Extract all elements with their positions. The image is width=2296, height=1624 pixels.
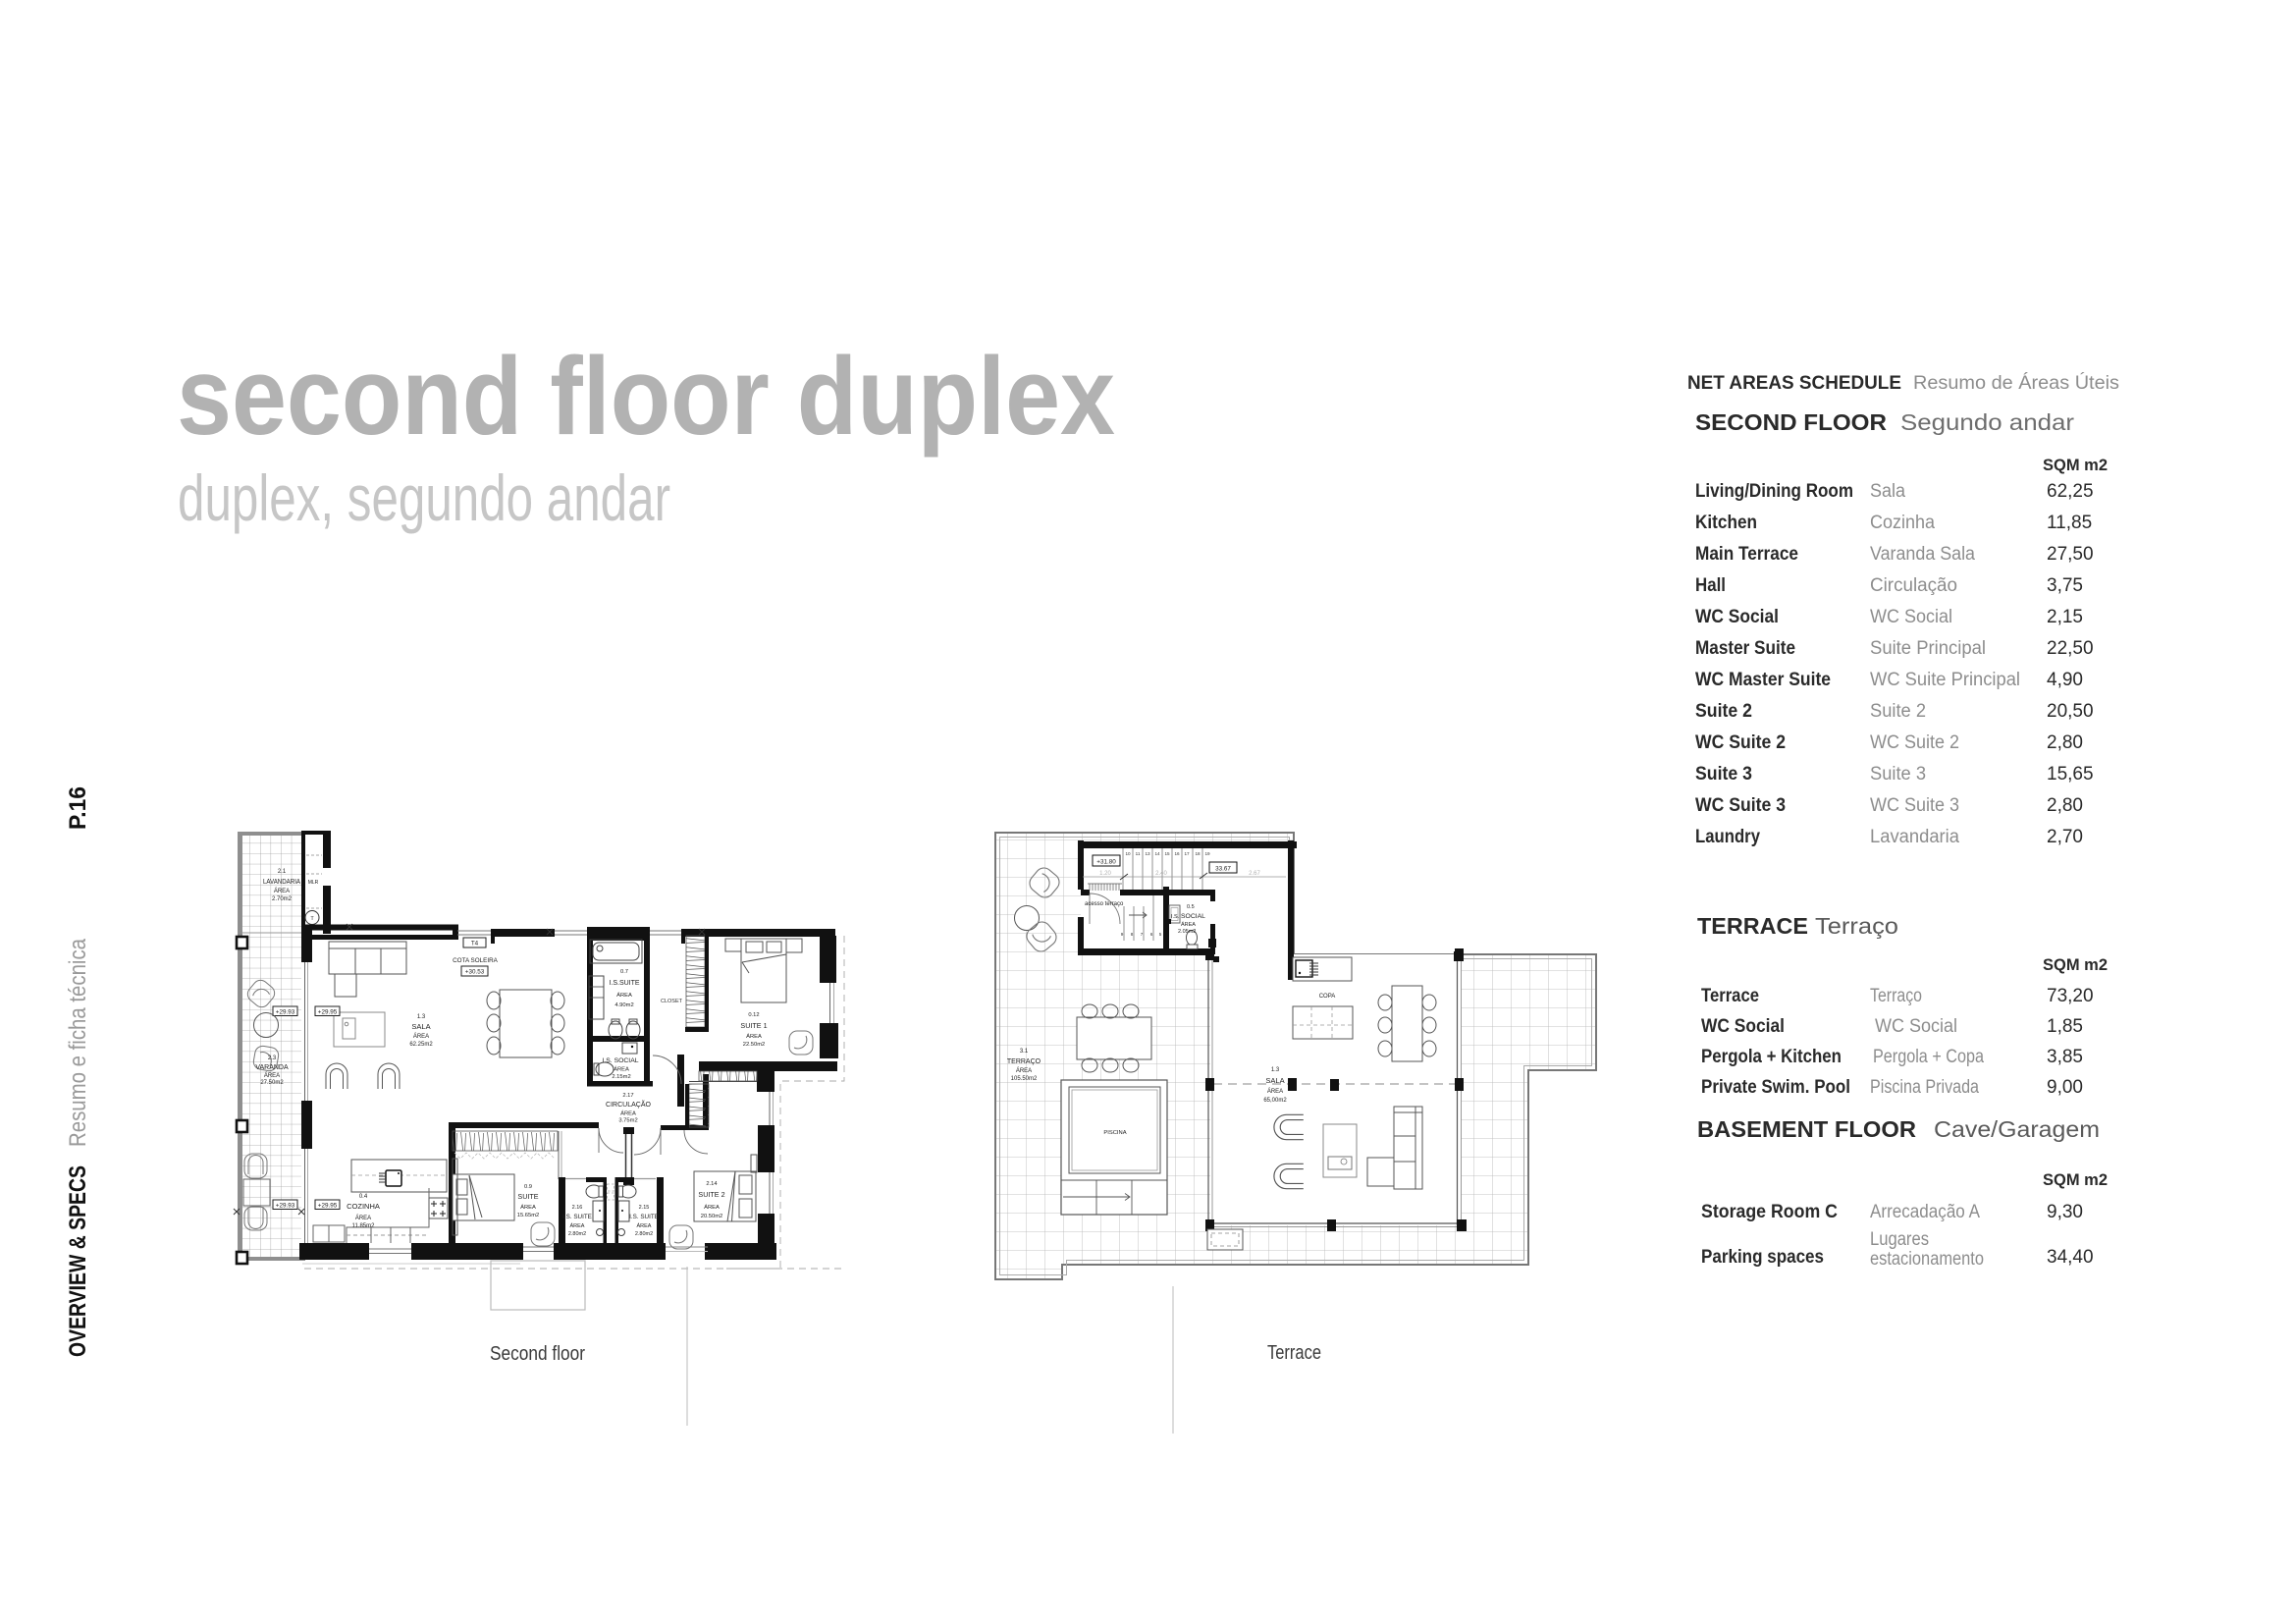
svg-text:27.50m2: 27.50m2 [260, 1080, 284, 1086]
svg-text:2.70m2: 2.70m2 [272, 896, 293, 902]
svg-text:BASEMENT FLOOR: BASEMENT FLOOR [1697, 1116, 1916, 1142]
svg-text:1.3: 1.3 [417, 1014, 426, 1020]
svg-text:Main Terrace: Main Terrace [1695, 544, 1798, 565]
svg-text:Resumo e ficha técnica: Resumo e ficha técnica [65, 938, 91, 1147]
svg-text:Resumo de Áreas Úteis: Resumo de Áreas Úteis [1913, 371, 2119, 394]
svg-text:ÁREA: ÁREA [570, 1222, 585, 1229]
svg-text:SALA: SALA [1265, 1076, 1284, 1085]
svg-text:SQM m2: SQM m2 [2043, 955, 2108, 974]
svg-text:COZINHA: COZINHA [347, 1202, 380, 1211]
svg-text:PISCINA: PISCINA [1103, 1130, 1126, 1136]
svg-text:+29.95: +29.95 [318, 1203, 338, 1210]
svg-text:ÁREA: ÁREA [1016, 1067, 1032, 1074]
svg-text:COPA: COPA [1319, 994, 1336, 1000]
svg-text:VARANDA: VARANDA [255, 1064, 289, 1071]
svg-text:18: 18 [1195, 851, 1201, 856]
svg-text:4,90: 4,90 [2047, 670, 2083, 690]
svg-text:Terrace: Terrace [1701, 986, 1759, 1006]
svg-text:estacionamento: estacionamento [1870, 1249, 1984, 1270]
svg-text:WC Suite Principal: WC Suite Principal [1870, 670, 2020, 690]
svg-text:Pergola + Kitchen: Pergola + Kitchen [1701, 1047, 1842, 1067]
svg-text:T4: T4 [471, 941, 479, 947]
svg-text:7: 7 [1141, 932, 1144, 937]
svg-text:20,50: 20,50 [2047, 701, 2094, 722]
svg-text:TERRAÇO: TERRAÇO [1007, 1058, 1041, 1065]
svg-text:Hall: Hall [1695, 575, 1726, 596]
svg-text:Lugares: Lugares [1870, 1229, 1929, 1250]
svg-text:1.20: 1.20 [1099, 871, 1111, 877]
svg-text:11,85: 11,85 [2047, 513, 2092, 533]
svg-text:9,00: 9,00 [2047, 1077, 2083, 1098]
svg-text:Master Suite: Master Suite [1695, 638, 1795, 659]
svg-text:Segundo andar: Segundo andar [1900, 409, 2074, 435]
svg-text:2.16: 2.16 [572, 1205, 583, 1211]
svg-text:ÁREA: ÁREA [746, 1033, 762, 1040]
svg-text:Suite 3: Suite 3 [1695, 764, 1752, 785]
svg-text:I.S. SOCIAL: I.S. SOCIAL [602, 1057, 638, 1064]
svg-text:ÁREA: ÁREA [637, 1222, 652, 1229]
svg-text:I.S. SUITE: I.S. SUITE [562, 1214, 592, 1220]
svg-text:0.5: 0.5 [1187, 904, 1195, 910]
svg-text:4.90m2: 4.90m2 [614, 1002, 633, 1008]
svg-text:WC Suite 2: WC Suite 2 [1695, 732, 1786, 753]
svg-text:ÁREA: ÁREA [704, 1204, 720, 1211]
svg-text:1.3: 1.3 [1271, 1067, 1280, 1073]
svg-text:WC Social: WC Social [1701, 1016, 1785, 1037]
svg-text:Suite Principal: Suite Principal [1870, 638, 1986, 659]
svg-text:15.65m2: 15.65m2 [517, 1213, 540, 1218]
svg-text:+29.95: +29.95 [318, 1009, 338, 1016]
svg-text:Terrace: Terrace [1267, 1341, 1321, 1364]
svg-text:ÁREA: ÁREA [520, 1204, 536, 1211]
svg-text:WC Suite 3: WC Suite 3 [1870, 795, 1959, 816]
svg-text:Arrecadação A: Arrecadação A [1870, 1202, 1980, 1222]
svg-text:11.85m2: 11.85m2 [352, 1223, 376, 1229]
svg-text:ÁREA: ÁREA [264, 1072, 280, 1079]
svg-text:Sala: Sala [1870, 481, 1905, 502]
svg-text:CIRCULAÇÃO: CIRCULAÇÃO [606, 1100, 651, 1109]
svg-text:14: 14 [1154, 851, 1160, 856]
svg-text:Parking spaces: Parking spaces [1701, 1247, 1824, 1268]
svg-text:WC Social: WC Social [1870, 607, 1952, 627]
svg-text:2.15m2: 2.15m2 [612, 1074, 630, 1080]
svg-text:MLR: MLR [308, 880, 319, 886]
svg-text:Piscina Privada: Piscina Privada [1870, 1077, 1979, 1098]
svg-text:+31.80: +31.80 [1096, 859, 1116, 866]
svg-text:0.9: 0.9 [524, 1184, 532, 1190]
svg-text:19: 19 [1204, 851, 1210, 856]
svg-text:Varanda Sala: Varanda Sala [1870, 544, 1975, 565]
svg-text:0.12: 0.12 [748, 1012, 759, 1018]
svg-text:ÁREA: ÁREA [355, 1215, 371, 1221]
svg-text:2,80: 2,80 [2047, 795, 2083, 816]
svg-text:I.S. SUITE: I.S. SUITE [629, 1214, 659, 1220]
svg-text:WC Suite 3: WC Suite 3 [1695, 795, 1786, 816]
svg-text:3.75m2: 3.75m2 [618, 1118, 637, 1124]
svg-text:ÁREA: ÁREA [616, 992, 632, 999]
svg-text:2.3: 2.3 [268, 1056, 277, 1061]
svg-text:ÁREA: ÁREA [620, 1110, 636, 1117]
svg-text:20.50m2: 20.50m2 [701, 1214, 723, 1219]
svg-text:P.16: P.16 [65, 786, 91, 830]
svg-text:SUITE: SUITE [517, 1192, 538, 1201]
svg-text:2.40: 2.40 [1155, 871, 1167, 877]
svg-text:62.25m2: 62.25m2 [409, 1042, 433, 1048]
svg-text:22.50m2: 22.50m2 [743, 1042, 766, 1048]
svg-text:15,65: 15,65 [2047, 764, 2094, 785]
svg-text:WC Social: WC Social [1695, 607, 1779, 627]
svg-text:34,40: 34,40 [2047, 1247, 2094, 1268]
svg-text:22,50: 22,50 [2047, 638, 2094, 659]
svg-text:11: 11 [1136, 851, 1141, 856]
svg-text:0.7: 0.7 [620, 969, 628, 975]
svg-text:SQM m2: SQM m2 [2043, 456, 2108, 474]
svg-text:1,85: 1,85 [2047, 1016, 2083, 1037]
svg-text:2,80: 2,80 [2047, 732, 2083, 753]
svg-text:Cozinha: Cozinha [1870, 513, 1935, 533]
svg-text:3.1: 3.1 [1020, 1049, 1029, 1055]
svg-text:27,50: 27,50 [2047, 544, 2094, 565]
svg-text:2.14: 2.14 [706, 1181, 718, 1187]
svg-text:17: 17 [1184, 851, 1190, 856]
svg-text:acesso terraço: acesso terraço [1085, 901, 1124, 907]
svg-text:CLOSET: CLOSET [661, 999, 683, 1004]
svg-text:2.80m2: 2.80m2 [635, 1231, 653, 1237]
svg-text:ÁREA: ÁREA [1181, 921, 1196, 928]
svg-text:3,75: 3,75 [2047, 575, 2083, 596]
svg-text:second floor duplex: second floor duplex [177, 335, 1115, 458]
svg-text:2,70: 2,70 [2047, 827, 2083, 847]
svg-text:+30.53: +30.53 [465, 969, 485, 976]
svg-text:I.S.SUITE: I.S.SUITE [609, 980, 639, 987]
svg-text:ÁREA: ÁREA [274, 888, 290, 894]
svg-text:0.4: 0.4 [359, 1194, 368, 1200]
svg-text:9: 9 [1121, 932, 1124, 937]
svg-text:Lavandaria: Lavandaria [1870, 827, 1959, 847]
svg-text:Second floor: Second floor [490, 1342, 585, 1365]
svg-text:LAVANDARIA: LAVANDARIA [263, 879, 300, 886]
svg-text:9,30: 9,30 [2047, 1202, 2083, 1222]
svg-text:WC Suite 2: WC Suite 2 [1870, 732, 1959, 753]
svg-text:Suite 2: Suite 2 [1695, 701, 1752, 722]
svg-text:+29.93: +29.93 [276, 1009, 295, 1016]
svg-text:duplex, segundo andar: duplex, segundo andar [178, 461, 670, 534]
svg-text:Circulação: Circulação [1870, 575, 1957, 596]
svg-text:Suite 2: Suite 2 [1870, 701, 1926, 722]
svg-text:SALA: SALA [411, 1022, 430, 1031]
svg-text:Laundry: Laundry [1695, 827, 1760, 847]
svg-text:2.05m2: 2.05m2 [1178, 929, 1196, 935]
svg-text:ÁREA: ÁREA [413, 1033, 429, 1040]
svg-text:62,25: 62,25 [2047, 481, 2094, 502]
svg-text:OVERVIEW & SPECS: OVERVIEW & SPECS [65, 1165, 91, 1357]
svg-text:WC Master Suite: WC Master Suite [1695, 670, 1831, 690]
svg-text:2.1: 2.1 [278, 869, 287, 875]
svg-text:Private Swim. Pool: Private Swim. Pool [1701, 1077, 1850, 1098]
svg-text:65,00m2: 65,00m2 [1263, 1098, 1287, 1104]
svg-text:105.50m2: 105.50m2 [1011, 1076, 1038, 1082]
svg-text:5: 5 [1159, 932, 1162, 937]
svg-text:3,85: 3,85 [2047, 1047, 2083, 1067]
svg-text:8: 8 [1131, 932, 1134, 937]
svg-text:COTA SOLEIRA: COTA SOLEIRA [453, 957, 499, 964]
svg-text:10: 10 [1125, 851, 1131, 856]
svg-text:2.67: 2.67 [1249, 871, 1260, 877]
svg-text:2.15: 2.15 [639, 1205, 650, 1211]
svg-text:2.17: 2.17 [622, 1093, 633, 1099]
svg-text:I.S.: I.S. [1171, 914, 1180, 920]
svg-text:Living/Dining Room: Living/Dining Room [1695, 481, 1853, 502]
svg-text:SQM m2: SQM m2 [2043, 1170, 2108, 1189]
svg-text:16: 16 [1174, 851, 1180, 856]
svg-text:Cave/Garagem: Cave/Garagem [1934, 1116, 2100, 1142]
svg-text:ÁREA: ÁREA [614, 1066, 629, 1073]
svg-text:TERRACE: TERRACE [1697, 913, 1808, 939]
svg-text:NET AREAS SCHEDULE: NET AREAS SCHEDULE [1687, 372, 1901, 394]
svg-text:33.67: 33.67 [1215, 866, 1231, 873]
svg-text:+29.93: +29.93 [276, 1203, 295, 1210]
svg-text:ÁREA: ÁREA [1267, 1088, 1283, 1095]
svg-text:Kitchen: Kitchen [1695, 513, 1757, 533]
svg-text:Pergola + Copa: Pergola + Copa [1873, 1047, 1984, 1067]
svg-text:SUITE 2: SUITE 2 [698, 1190, 724, 1199]
svg-text:2,15: 2,15 [2047, 607, 2083, 627]
svg-text:WC Social: WC Social [1875, 1016, 1957, 1037]
svg-text:2.80m2: 2.80m2 [568, 1231, 586, 1237]
svg-text:Terraço: Terraço [1870, 986, 1922, 1006]
svg-text:13: 13 [1145, 851, 1150, 856]
svg-text:Terraço: Terraço [1815, 913, 1898, 939]
svg-text:Suite 3: Suite 3 [1870, 764, 1926, 785]
svg-text:6: 6 [1150, 932, 1153, 937]
svg-text:SECOND FLOOR: SECOND FLOOR [1695, 409, 1887, 435]
svg-text:Storage Room C: Storage Room C [1701, 1202, 1838, 1222]
svg-text:15: 15 [1164, 851, 1170, 856]
svg-text:SUITE 1: SUITE 1 [740, 1021, 767, 1030]
svg-text:73,20: 73,20 [2047, 986, 2094, 1006]
svg-text:SOCIAL: SOCIAL [1181, 913, 1205, 920]
